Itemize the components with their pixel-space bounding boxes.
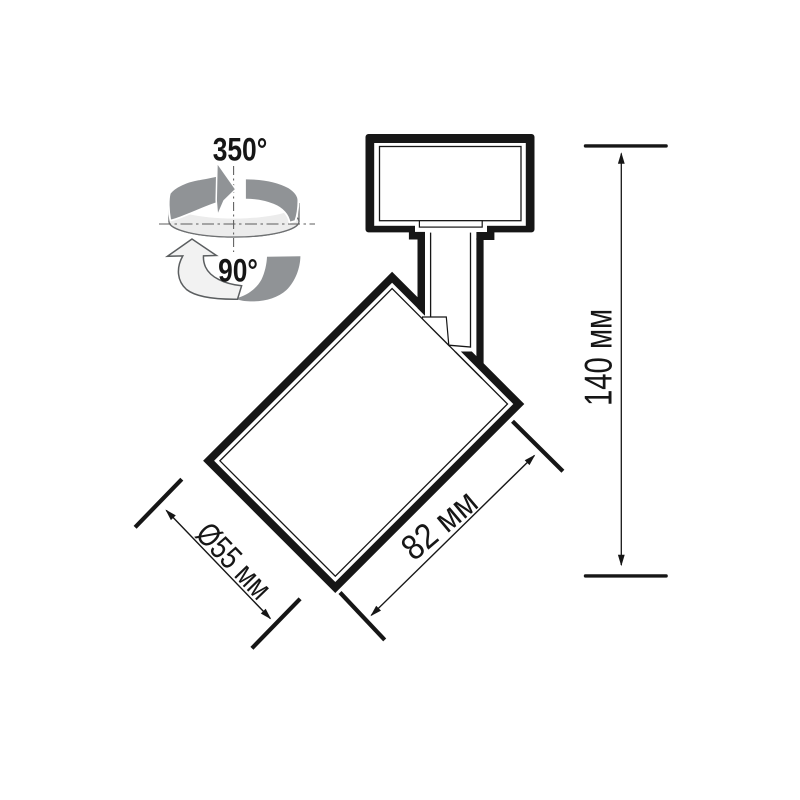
svg-text:140 мм: 140 мм — [578, 309, 621, 406]
svg-text:350°: 350° — [213, 132, 268, 168]
svg-text:90°: 90° — [218, 253, 258, 289]
